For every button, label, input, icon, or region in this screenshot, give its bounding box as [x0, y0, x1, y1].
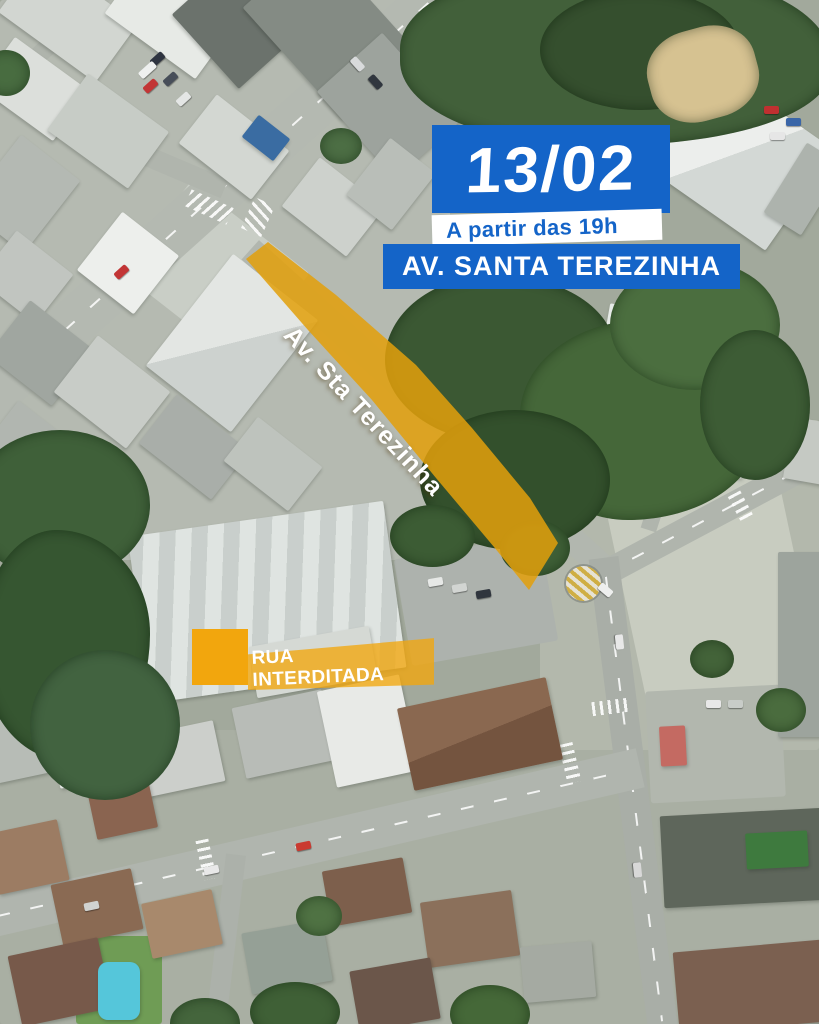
- building-roof: [673, 940, 819, 1024]
- road-closure-flyer: Av. Sta Terezinha 13/02 A partir das 19h…: [0, 0, 819, 1024]
- tree-canopy: [296, 896, 342, 936]
- swimming-pool: [98, 962, 140, 1020]
- car: [706, 700, 721, 708]
- tree-canopy: [30, 650, 180, 800]
- banner-time-text: A partir das 19h: [446, 213, 619, 244]
- banner-date-box: 13/02: [432, 125, 670, 213]
- banner-time-bar: A partir das 19h: [432, 209, 663, 246]
- car: [770, 132, 785, 140]
- car: [615, 634, 625, 650]
- sports-court: [745, 830, 809, 869]
- building-roof: [659, 725, 687, 766]
- tree-canopy: [756, 688, 806, 732]
- tree-canopy: [690, 640, 734, 678]
- car: [764, 106, 779, 114]
- banner-street-text: AV. SANTA TEREZINHA: [402, 251, 721, 282]
- banner-date-text: 13/02: [464, 131, 638, 208]
- house-roof: [420, 890, 520, 968]
- tree-canopy: [700, 330, 810, 480]
- tree-canopy: [500, 520, 570, 576]
- car: [786, 118, 801, 126]
- banner-street-bar: AV. SANTA TEREZINHA: [383, 244, 740, 289]
- roundabout-island: [566, 566, 601, 601]
- legend-label: RUA INTERDITADA: [251, 641, 431, 691]
- car: [728, 700, 743, 708]
- car: [633, 862, 643, 878]
- tree-canopy: [390, 505, 475, 567]
- legend-swatch: [192, 629, 248, 685]
- house-roof: [520, 941, 597, 1003]
- tree-canopy: [320, 128, 362, 164]
